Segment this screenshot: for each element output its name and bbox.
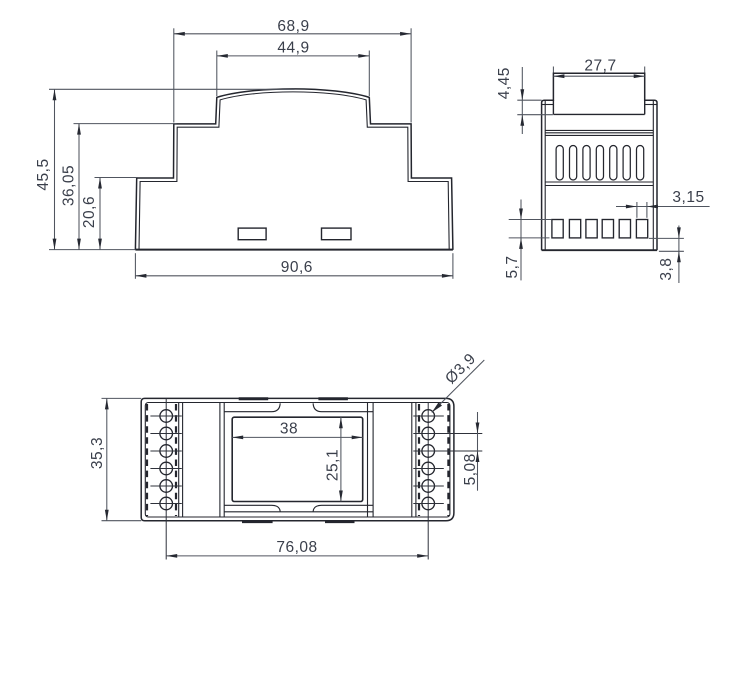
- svg-text:76,08: 76,08: [276, 539, 317, 556]
- svg-text:90,6: 90,6: [281, 259, 313, 276]
- svg-text:44,9: 44,9: [277, 40, 309, 57]
- svg-text:4,45: 4,45: [496, 67, 513, 99]
- svg-text:20,6: 20,6: [81, 196, 98, 228]
- svg-text:38: 38: [280, 421, 298, 438]
- svg-text:Ø3,9: Ø3,9: [442, 350, 479, 387]
- svg-text:3,8: 3,8: [658, 258, 675, 281]
- svg-text:25,1: 25,1: [325, 449, 342, 481]
- svg-text:45,5: 45,5: [35, 158, 52, 190]
- svg-text:36,05: 36,05: [61, 165, 78, 206]
- svg-text:5,7: 5,7: [504, 255, 521, 278]
- svg-text:3,15: 3,15: [672, 189, 704, 206]
- svg-text:27,7: 27,7: [584, 57, 616, 74]
- svg-text:68,9: 68,9: [277, 18, 309, 35]
- svg-text:35,3: 35,3: [89, 437, 106, 469]
- svg-text:5,08: 5,08: [462, 453, 479, 485]
